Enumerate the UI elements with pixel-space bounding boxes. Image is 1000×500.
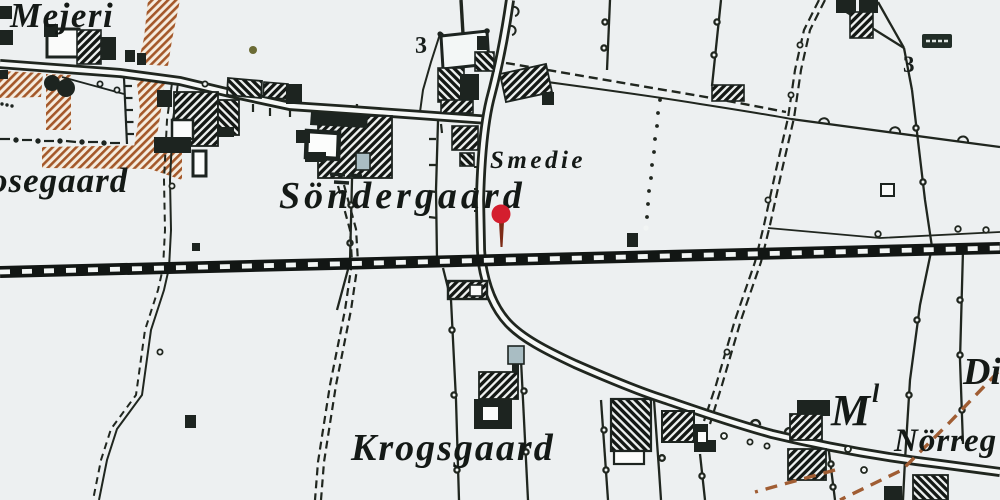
svg-text:Nörreg: Nörreg	[893, 423, 997, 459]
svg-text:l: l	[872, 379, 880, 408]
svg-text:M: M	[830, 386, 872, 435]
svg-text:3: 3	[415, 33, 427, 59]
svg-text:3: 3	[903, 52, 915, 77]
svg-text:Smedie: Smedie	[490, 147, 586, 174]
svg-text:Di: Di	[962, 351, 1000, 393]
svg-text:osegaard: osegaard	[0, 161, 128, 200]
svg-text:Mejeri: Mejeri	[9, 0, 114, 35]
svg-text:Krogsgaard: Krogsgaard	[350, 427, 555, 469]
svg-text:Söndergaard: Söndergaard	[279, 175, 526, 217]
